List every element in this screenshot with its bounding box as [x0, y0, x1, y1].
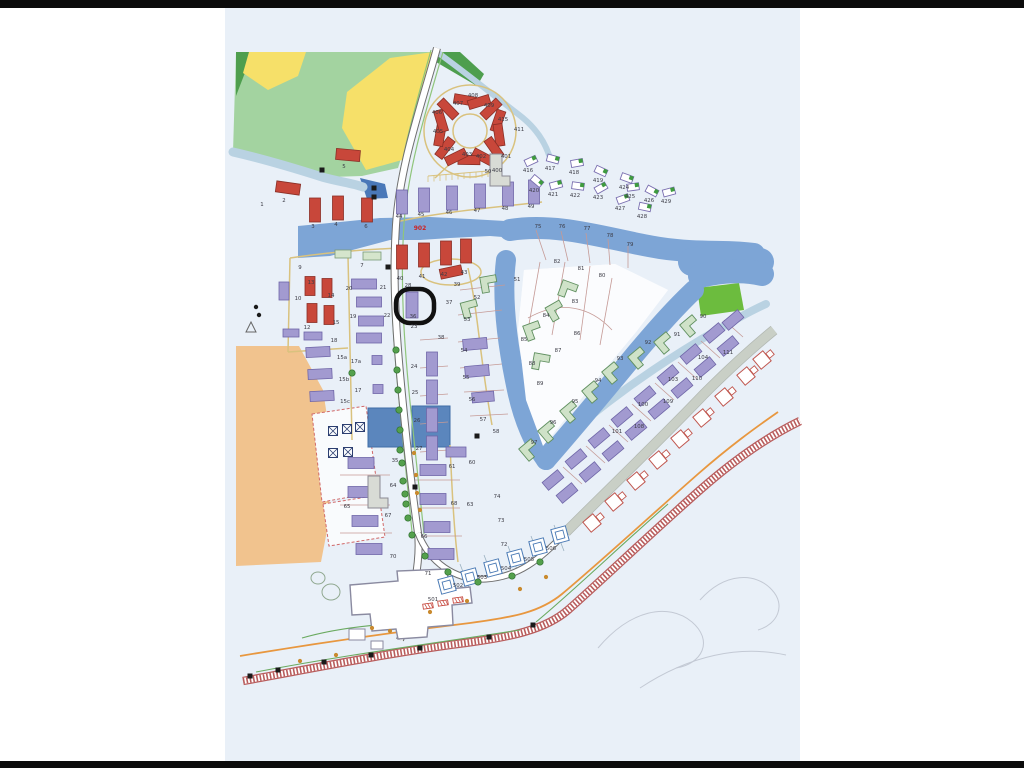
plot-label: 46 [446, 210, 453, 216]
marker-icon [276, 668, 281, 673]
building-purple [359, 316, 384, 326]
point-marker-icon [257, 313, 261, 317]
plot-label: 37 [446, 300, 453, 306]
building-red [419, 243, 430, 267]
building-purple [357, 333, 382, 343]
marker-icon [386, 265, 391, 270]
building-red [307, 304, 317, 323]
plot-label: 82 [554, 259, 561, 265]
plot-label: 88 [529, 361, 536, 367]
shrub-dot-icon [414, 473, 418, 477]
plot-label: 25 [412, 390, 419, 396]
plot-label: 35 [392, 458, 399, 464]
tree-icon [445, 569, 451, 575]
plot-label: 7 [360, 263, 363, 269]
building-purple [348, 458, 374, 469]
outbuilding [371, 641, 383, 649]
shrub-dot-icon [298, 659, 302, 663]
plot-label: 39 [454, 282, 461, 288]
plot-label: 81 [578, 266, 585, 272]
marker-icon [372, 186, 377, 191]
building-pale [363, 252, 381, 260]
plot-label: 409 [484, 103, 495, 109]
plot-label: 13 [308, 280, 315, 286]
plot-symbol-blue [529, 538, 547, 556]
building-purple [419, 188, 430, 212]
plot-label: 27 [416, 446, 423, 452]
building-pale [335, 250, 351, 258]
plot-label: 73 [498, 518, 505, 524]
plot-label: 67 [385, 513, 392, 519]
marker-icon [531, 623, 536, 628]
plot-label: 5 [342, 164, 345, 170]
plot-label: 53 [464, 317, 471, 323]
plot-label: 57 [480, 417, 487, 423]
plot-label: 83 [572, 299, 579, 305]
tree-icon [405, 515, 411, 521]
plot-label: 416 [523, 168, 534, 174]
tree-icon [397, 427, 403, 433]
plot-label: 3 [311, 224, 314, 230]
plot-label: 4 [334, 222, 338, 228]
plot-label: 417 [545, 166, 555, 172]
plot-label: 421 [548, 192, 558, 198]
plot-label: 404 [444, 147, 455, 153]
plot-label: 101 [612, 429, 622, 435]
plot-label: 15b [339, 377, 350, 383]
building-purple [304, 332, 322, 340]
plot-label: 90 [700, 314, 707, 320]
plot-label: 20 [346, 286, 353, 292]
plot-label: 408 [468, 93, 479, 99]
tree-icon [397, 447, 403, 453]
plot-label: 407 [453, 101, 463, 107]
marker-icon [418, 646, 423, 651]
plot-label: 423 [593, 195, 603, 201]
plot-label: 10 [295, 296, 302, 302]
marker-icon [487, 635, 492, 640]
plot-label: 15a [337, 355, 347, 361]
marker-icon [372, 195, 377, 200]
tree-icon [399, 460, 405, 466]
shrub-dot-icon [518, 587, 522, 591]
plot-label: 428 [637, 214, 648, 220]
plot-label: 15c [340, 399, 350, 405]
shrub-dot-icon [415, 491, 419, 495]
plot-label: 78 [607, 233, 614, 239]
plot-symbol-blue [551, 526, 569, 544]
building-purple [446, 447, 466, 457]
plot-label: 14 [328, 293, 335, 299]
plot-label: 424 [619, 185, 630, 191]
building-purple [420, 494, 446, 505]
plot-label: 504 [501, 566, 512, 572]
plot-label: 505 [524, 557, 534, 563]
building-purple [306, 346, 330, 357]
shrub-dot-icon [388, 629, 392, 633]
marker-icon [320, 168, 325, 173]
plot-label: 28 [405, 283, 412, 289]
tree-icon [422, 553, 428, 559]
plot-label: 86 [574, 331, 581, 337]
plot-label: 502 [453, 583, 463, 589]
building-purple [424, 522, 450, 533]
letterbox-bottom [0, 761, 1024, 768]
plot-label: 17a [351, 359, 361, 365]
plot-label: 420 [529, 188, 540, 194]
plot-label: 36 [410, 314, 417, 320]
plot-label: 51 [514, 277, 521, 283]
building-purple [357, 297, 382, 307]
tree-icon [393, 347, 399, 353]
plot-label: 71 [425, 571, 432, 577]
building-outlined [572, 182, 585, 191]
plot-label: 41 [419, 274, 426, 280]
shrub-dot-icon [428, 610, 432, 614]
building-purple [372, 356, 382, 365]
building-purple [356, 544, 382, 555]
outbuilding [349, 629, 365, 640]
tree-icon [409, 532, 415, 538]
plot-label: 422 [570, 193, 580, 199]
plot-label: 44 [396, 214, 403, 220]
marker-icon [475, 434, 480, 439]
building-red [441, 241, 452, 265]
marker-icon [248, 674, 253, 679]
building-purple [427, 380, 438, 404]
plot-label: 42 [441, 272, 448, 278]
tree-icon [402, 491, 408, 497]
plot-label: 401 [501, 154, 511, 160]
plot-label: 94 [595, 378, 602, 384]
tree-icon [349, 370, 355, 376]
plot-label: 47 [474, 208, 481, 214]
plot-label: 17 [355, 388, 362, 394]
plot-label: 87 [555, 348, 562, 354]
building-purple [352, 279, 377, 289]
plot-label: 63 [467, 502, 474, 508]
plot-label: 9 [298, 265, 302, 271]
plot-label: 49 [528, 204, 535, 210]
plot-label: 56 [469, 397, 476, 403]
plot-label: 91 [674, 332, 681, 338]
plot-label: 58 [493, 429, 500, 435]
plot-label: 104 [698, 355, 709, 361]
plot-label: 427 [615, 206, 625, 212]
shrub-dot-icon [334, 653, 338, 657]
tree-icon [403, 501, 409, 507]
plot-label: 26 [414, 418, 421, 424]
plot-label: 38 [438, 335, 445, 341]
plot-label: 2 [282, 198, 285, 204]
building-purple [308, 368, 332, 379]
plot-label: 15 [333, 320, 340, 326]
point-marker-icon [254, 305, 258, 309]
plot-label: 93 [617, 356, 624, 362]
plot-label: 68 [451, 501, 458, 507]
plot-label: 79 [627, 242, 634, 248]
plot-label: 109 [663, 399, 674, 405]
plot-label: 66 [421, 534, 428, 540]
canal-number-label: 902 [414, 225, 427, 232]
plot-label: 103 [668, 377, 678, 383]
tree-icon [400, 478, 406, 484]
plot-label: 18 [331, 338, 338, 344]
plot-label: 21 [380, 285, 387, 291]
scanned-map-page: 4004014024034044054064074084094154114164… [0, 0, 1024, 768]
marker-icon [369, 653, 374, 658]
plot-label: 402 [476, 154, 486, 160]
plot-label: 418 [569, 170, 580, 176]
plot-label: 61 [449, 464, 456, 470]
building-purple [475, 184, 486, 208]
building-purple [447, 186, 458, 210]
plot-label: 74 [494, 494, 501, 500]
plot-label: 75 [535, 224, 542, 230]
plot-label: 400 [492, 168, 503, 174]
building-red [333, 196, 344, 220]
site-plan-map: 4004014024034044054064074084094154114164… [0, 0, 1024, 768]
building-red [362, 198, 373, 222]
plot-label: 92 [645, 340, 652, 346]
building-purple [279, 282, 289, 300]
plot-label: 72 [501, 542, 508, 548]
plot-label: 97 [531, 440, 538, 446]
plot-label: 89 [537, 381, 544, 387]
building-purple [397, 190, 408, 214]
marker-icon [322, 660, 327, 665]
plot-label: 12 [304, 325, 311, 331]
plot-label: 6 [364, 224, 368, 230]
plot-label: 50 [485, 169, 492, 175]
plot-label: 95 [572, 399, 579, 405]
tree-icon [537, 559, 543, 565]
tree-icon [396, 407, 402, 413]
plot-label: 110 [692, 376, 703, 382]
plot-label: 24 [411, 364, 418, 370]
plot-label: 503 [477, 575, 487, 581]
shrub-dot-icon [465, 599, 469, 603]
building-purple [428, 549, 454, 560]
plot-label: 100 [638, 402, 649, 408]
plot-label: 419 [593, 178, 604, 184]
plot-label: 54 [461, 348, 468, 354]
plot-label: 40 [397, 276, 404, 282]
plot-label: 23 [411, 324, 418, 330]
plot-label: 19 [350, 314, 357, 320]
building-red [461, 239, 472, 263]
plot-label: 80 [599, 273, 606, 279]
building-purple [310, 390, 334, 401]
plot-label: 108 [634, 424, 645, 430]
plot-label: 22 [384, 313, 391, 319]
tree-icon [509, 573, 515, 579]
plot-label: 426 [644, 198, 655, 204]
plot-label: 406 [432, 110, 443, 116]
plot-label: 60 [469, 460, 476, 466]
plot-label: 55 [463, 375, 470, 381]
building-red [310, 198, 321, 222]
plot-symbol-blue [507, 549, 525, 567]
shrub-dot-icon [418, 508, 422, 512]
plot-label: 85 [521, 337, 528, 343]
building-red [397, 245, 408, 269]
building-purple [420, 465, 446, 476]
plot-label: 403 [462, 152, 472, 158]
building-purple [427, 408, 438, 432]
building-outlined [570, 159, 583, 168]
plot-label: 45 [418, 212, 425, 218]
plot-label: 111 [723, 350, 733, 356]
tree-icon [395, 387, 401, 393]
tree-icon [394, 367, 400, 373]
building-purple [427, 436, 438, 460]
plot-label: 48 [502, 206, 509, 212]
plot-label: 70 [390, 554, 397, 560]
plot-label: 77 [584, 226, 591, 232]
plot-label: 43 [461, 270, 468, 276]
plot-label: 429 [661, 199, 672, 205]
plot-label: 96 [550, 420, 557, 426]
building-red [336, 148, 361, 161]
plot-label: 506 [546, 546, 557, 552]
plot-label: 405 [433, 129, 443, 135]
building-purple [373, 385, 383, 394]
plot-label: 425 [625, 194, 635, 200]
plot-label: 415 [498, 117, 508, 123]
plot-label: 501 [428, 597, 438, 603]
letterbox-top [0, 0, 1024, 8]
building-purple [427, 352, 438, 376]
canal [700, 271, 762, 276]
building-purple [352, 516, 378, 527]
plot-label: 64 [390, 483, 397, 489]
marker-icon [413, 485, 418, 490]
plot-label: 52 [474, 295, 481, 301]
shrub-dot-icon [544, 575, 548, 579]
plot-label: 76 [559, 224, 566, 230]
plot-label: 84 [543, 313, 550, 319]
plot-label: 411 [514, 127, 524, 133]
building-purple [283, 329, 299, 337]
plot-label: 1 [260, 202, 263, 208]
shrub-dot-icon [370, 626, 374, 630]
plot-label: 65 [344, 504, 351, 510]
